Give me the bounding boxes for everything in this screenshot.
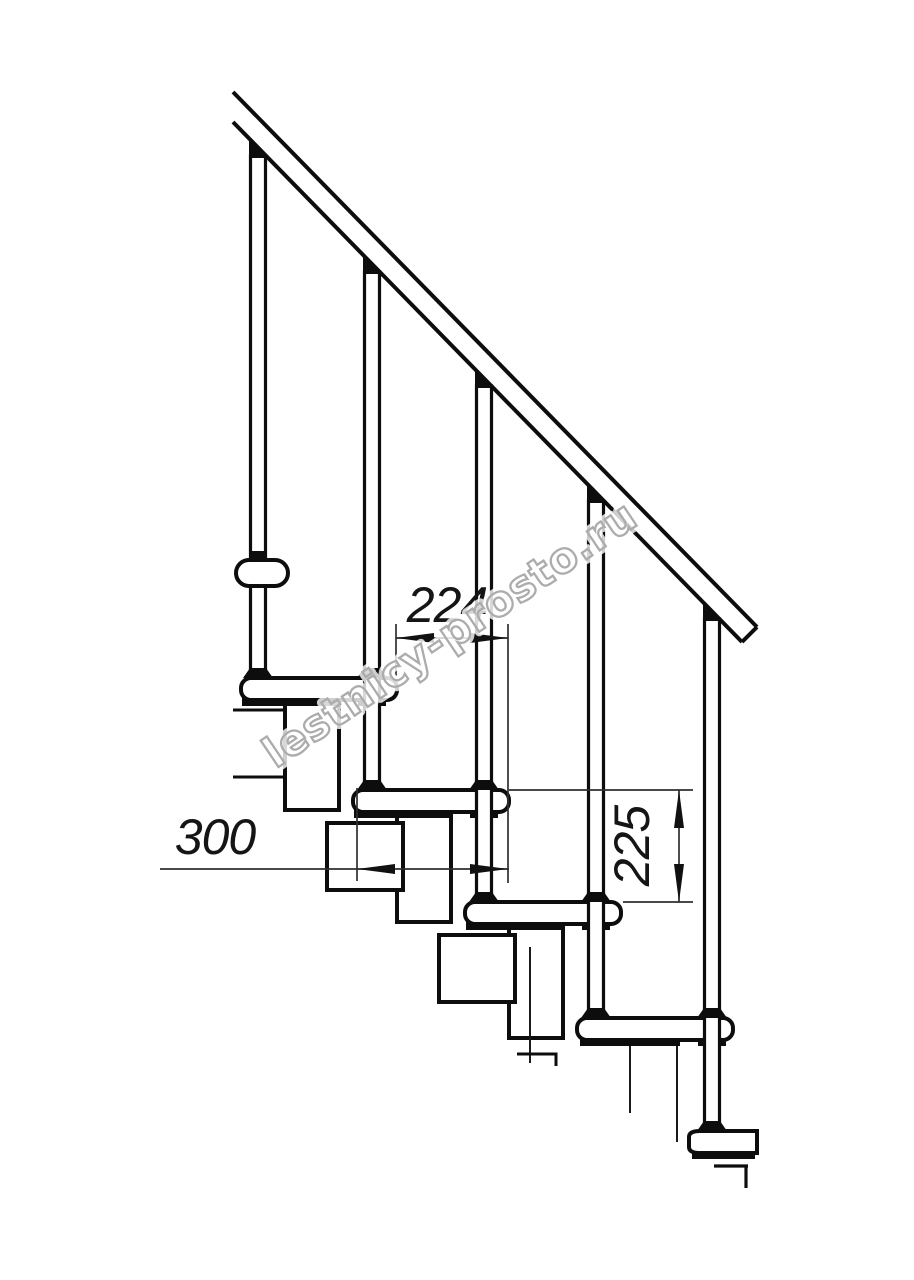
flange-b5-t4	[697, 1008, 727, 1018]
drawing-canvas: 224 300 225 lestnicy-prosto.ru lestnicy-…	[0, 0, 914, 1280]
handrail-end-cut	[742, 627, 757, 642]
handrail-top-edge	[233, 92, 757, 627]
flange-b2-t2	[357, 780, 387, 790]
handrail-section-pill	[236, 560, 288, 586]
flange-b4-t4	[581, 1008, 611, 1018]
staircase-technical-drawing: 224 300 225 lestnicy-prosto.ru lestnicy-…	[0, 0, 914, 1280]
flange-b3-t2	[469, 780, 499, 790]
arrow-225-down	[674, 864, 684, 902]
baluster-5	[705, 619, 720, 1125]
baluster-1	[251, 156, 266, 672]
module-box-2	[397, 812, 451, 922]
module-square-2	[439, 935, 515, 1002]
module-box-3	[509, 924, 563, 1038]
flange-b5-t5	[697, 1121, 727, 1131]
dim-label-300: 300	[175, 809, 257, 865]
arrow-225-up	[674, 790, 684, 828]
dim-label-225: 225	[604, 805, 660, 888]
module-square-1	[327, 823, 403, 890]
module-hook	[517, 1054, 556, 1066]
handrail	[233, 92, 757, 642]
flange-b4-t3	[581, 892, 611, 902]
baluster-4	[589, 501, 604, 1012]
tread-5-cut	[689, 1131, 757, 1153]
flange-b1-t1	[243, 668, 273, 678]
flange-b3-t3	[469, 892, 499, 902]
